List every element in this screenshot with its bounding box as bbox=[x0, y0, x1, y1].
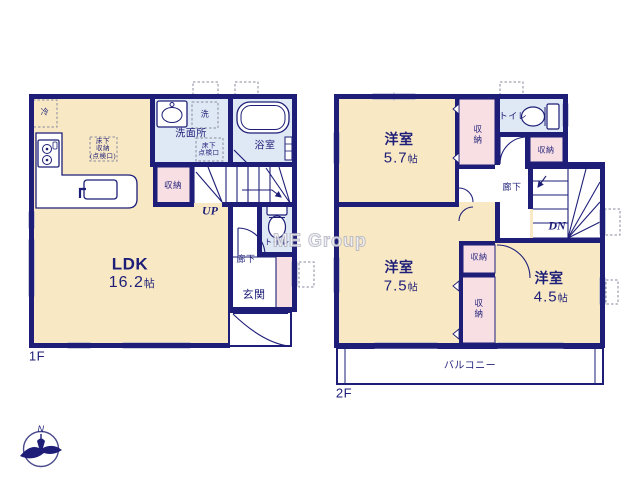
room-size-ldk: 16.2帖 bbox=[109, 274, 156, 292]
floor2-label: 2F bbox=[336, 387, 352, 402]
stairs-up-label: UP bbox=[202, 204, 218, 217]
fridge-label: 冷 bbox=[41, 109, 50, 118]
room-label-entrance: 玄関 bbox=[243, 289, 266, 301]
high-window-3 bbox=[500, 82, 523, 95]
shutter-box-1f bbox=[299, 262, 314, 287]
high-window-2 bbox=[235, 82, 258, 95]
shutter-box-2f-b bbox=[606, 280, 618, 304]
room-label-storage-1f: 収納 bbox=[164, 181, 182, 191]
room-label-ldk: LDK bbox=[112, 254, 148, 273]
room-size-bedroom-a: 5.7帖 bbox=[384, 151, 419, 168]
stove-icon bbox=[38, 140, 59, 167]
compass-north-label: N bbox=[38, 424, 45, 434]
entrance-porch bbox=[229, 312, 291, 346]
high-window-1 bbox=[193, 82, 218, 95]
room-size-bedroom-b: 7.5帖 bbox=[384, 279, 419, 296]
stairs-down-label: DN bbox=[548, 219, 565, 232]
room-label-bathroom: 浴室 bbox=[255, 140, 276, 151]
ldk-size-unit: 帖 bbox=[144, 278, 155, 290]
washer-label: 洗 bbox=[201, 111, 210, 120]
bird-silhouette-icon bbox=[20, 439, 62, 459]
room-label-bedroom-c: 洋室 bbox=[535, 271, 564, 287]
bedroom-c-size-value: 4.5 bbox=[534, 289, 558, 306]
room-label-closet-a: 収納 bbox=[472, 125, 482, 146]
room-label-bedroom-a: 洋室 bbox=[385, 132, 414, 148]
bedroom-b-size-unit: 帖 bbox=[408, 283, 419, 294]
shutter-box-2f-a bbox=[604, 209, 620, 235]
floorplan-page: LDK 16.2帖 洗面所 浴室 収納 UP トイレ 廊下 玄関 冷 洗 床下 … bbox=[0, 0, 640, 480]
watermark: ME Group bbox=[273, 231, 367, 252]
room-label-closet-c: 収納 bbox=[471, 254, 488, 263]
room-label-balcony: バルコニー bbox=[444, 360, 496, 371]
room-label-hallway-2f: 廊下 bbox=[502, 182, 521, 192]
room-label-hallway-1f: 廊下 bbox=[236, 254, 255, 264]
compass bbox=[20, 432, 62, 467]
bedroom-c-size-unit: 帖 bbox=[558, 294, 569, 305]
floor1-plan bbox=[29, 82, 314, 348]
underfloor-storage-label: 床下 収納 (点検口) bbox=[90, 138, 116, 160]
kitchen-sink-icon bbox=[80, 180, 117, 199]
bedroom-a-size-unit: 帖 bbox=[408, 155, 419, 166]
room-size-bedroom-c: 4.5帖 bbox=[534, 290, 569, 307]
room-label-bedroom-b: 洋室 bbox=[385, 260, 414, 276]
bedroom-b-size-value: 7.5 bbox=[384, 278, 408, 295]
bedroom-a-size-value: 5.7 bbox=[384, 150, 408, 167]
underfloor-hatch-label: 床下 点検口 bbox=[199, 143, 220, 158]
vanity-sink-icon bbox=[157, 101, 187, 127]
floor1-label: 1F bbox=[29, 350, 45, 365]
room-label-washroom: 洗面所 bbox=[175, 128, 207, 139]
ldk-size-value: 16.2 bbox=[109, 274, 144, 291]
room-label-closet-b: 収納 bbox=[538, 147, 555, 156]
room-label-toilet-2f: トイレ bbox=[499, 111, 528, 121]
room-label-closet-d: 収納 bbox=[473, 299, 483, 320]
entrance-pink-strip bbox=[276, 257, 292, 307]
vestibule bbox=[459, 169, 495, 202]
